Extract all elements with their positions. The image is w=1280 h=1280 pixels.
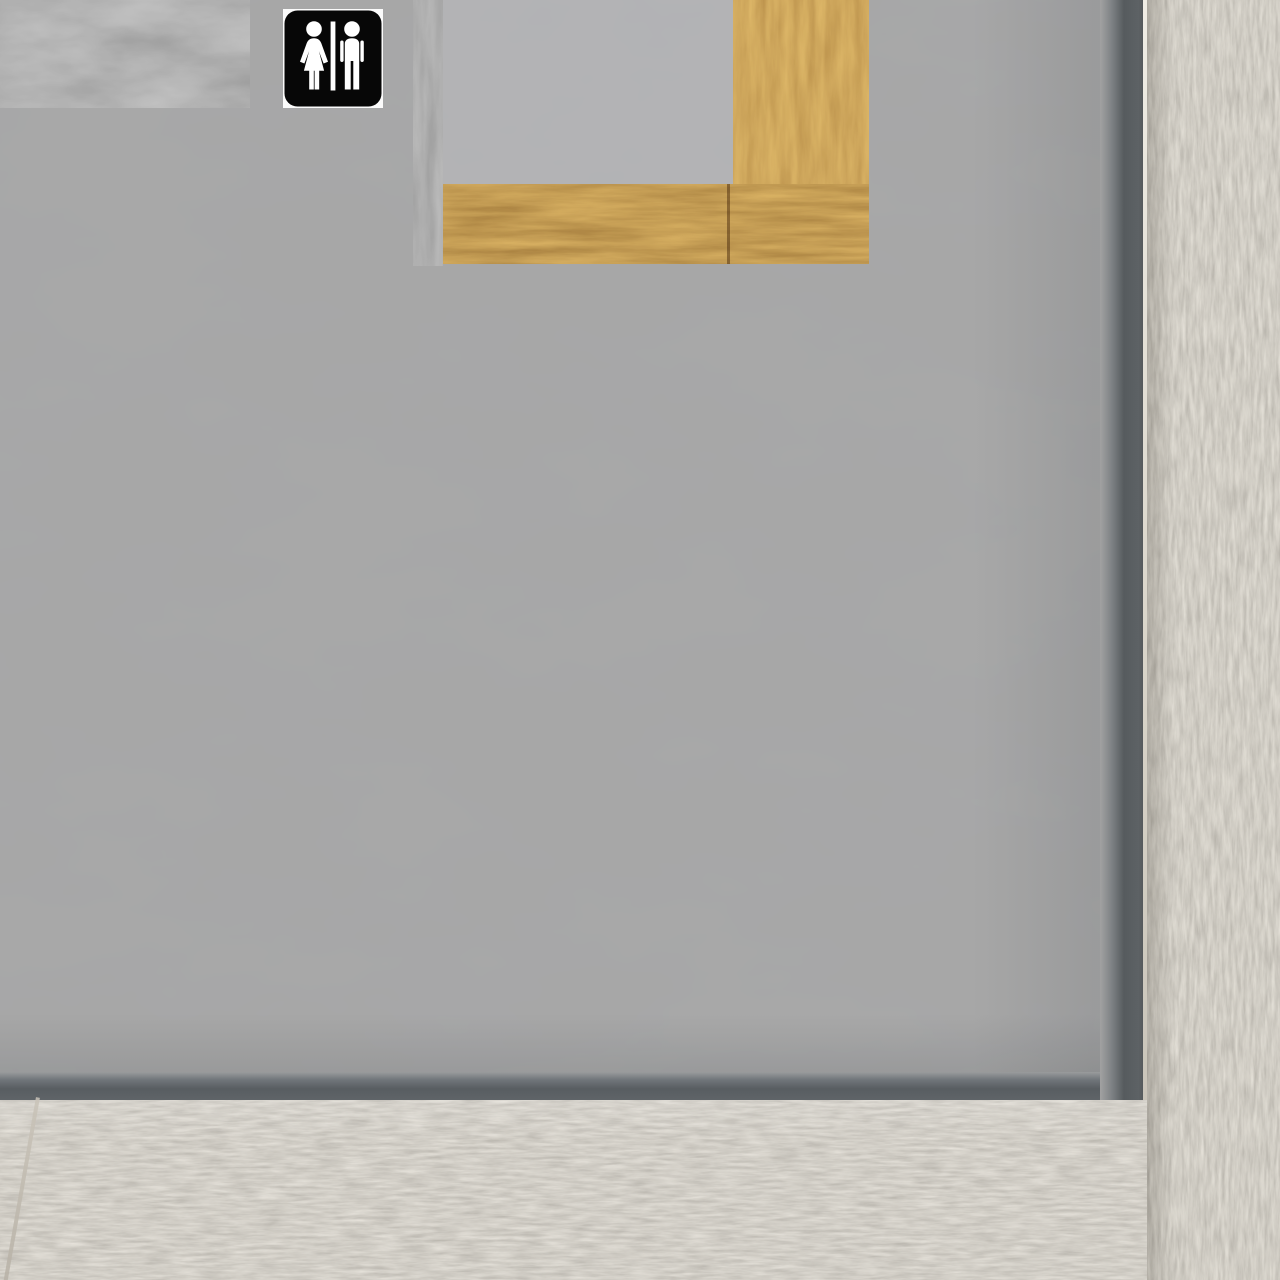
orange-wood-panel [733,0,869,186]
wall-baseboard-trim [0,1072,1146,1100]
concrete-column [1147,0,1280,1280]
concrete-floor [0,1100,1147,1280]
wood-plank-seam [727,184,730,264]
gray-wood-panel [0,0,250,108]
orange-wood-strip [443,184,869,264]
recessed-concrete-panel [443,0,733,186]
floor-light-band [0,1100,1147,1280]
wall-corner-trim [1100,0,1146,1100]
restroom-sign [283,9,383,108]
column-shading [1147,0,1280,1280]
gray-wood-strip [413,0,443,266]
divider-bar [331,22,336,91]
scene-viewport[interactable] [0,0,1280,1280]
